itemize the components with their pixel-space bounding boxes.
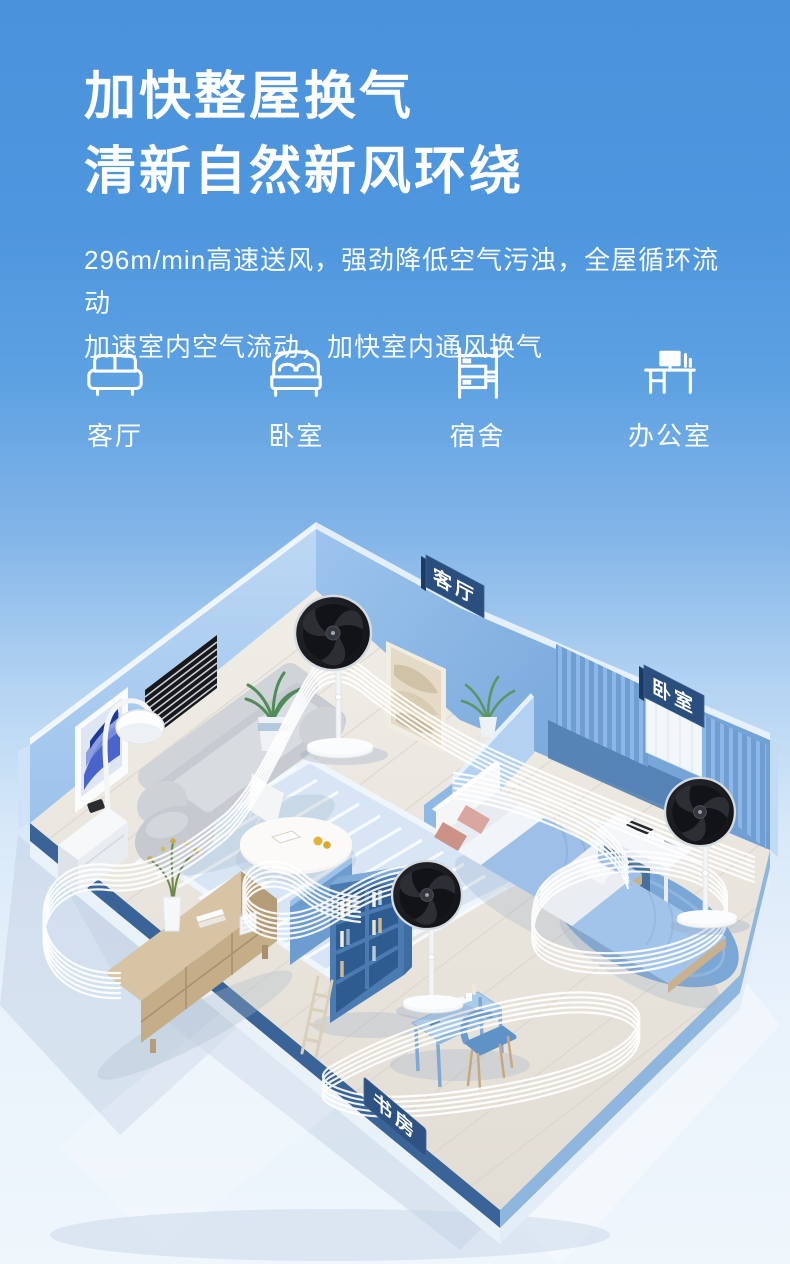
scene-dorm: 宿舍 <box>447 342 509 453</box>
scene-label-dorm: 宿舍 <box>450 416 506 453</box>
page-title: 加快整屋换气 清新自然新风环绕 <box>84 60 744 211</box>
scene-bedroom: 卧室 <box>265 342 327 453</box>
double-bed-icon <box>265 342 327 404</box>
scene-label-living: 客厅 <box>87 416 143 453</box>
scene-office: 办公室 <box>628 342 712 453</box>
subtitle-line-1: 296m/min高速送风，强劲降低空气污浊，全屋循环流动 <box>84 239 744 326</box>
sofa-icon <box>84 342 146 404</box>
title-line-1: 加快整屋换气 <box>84 60 744 135</box>
scene-row: 客厅 卧室 宿舍 <box>84 342 712 453</box>
bunk-bed-icon <box>447 342 509 404</box>
scene-label-office: 办公室 <box>628 416 712 453</box>
scene-living-room: 客厅 <box>84 342 146 453</box>
office-desk-icon <box>639 342 701 404</box>
room-illustration: 客厅 卧室 书房 <box>0 505 790 1264</box>
hero-section: 加快整屋换气 清新自然新风环绕 296m/min高速送风，强劲降低空气污浊，全屋… <box>84 60 744 370</box>
title-line-2: 清新自然新风环绕 <box>84 135 744 210</box>
scene-label-bedroom: 卧室 <box>268 416 324 453</box>
